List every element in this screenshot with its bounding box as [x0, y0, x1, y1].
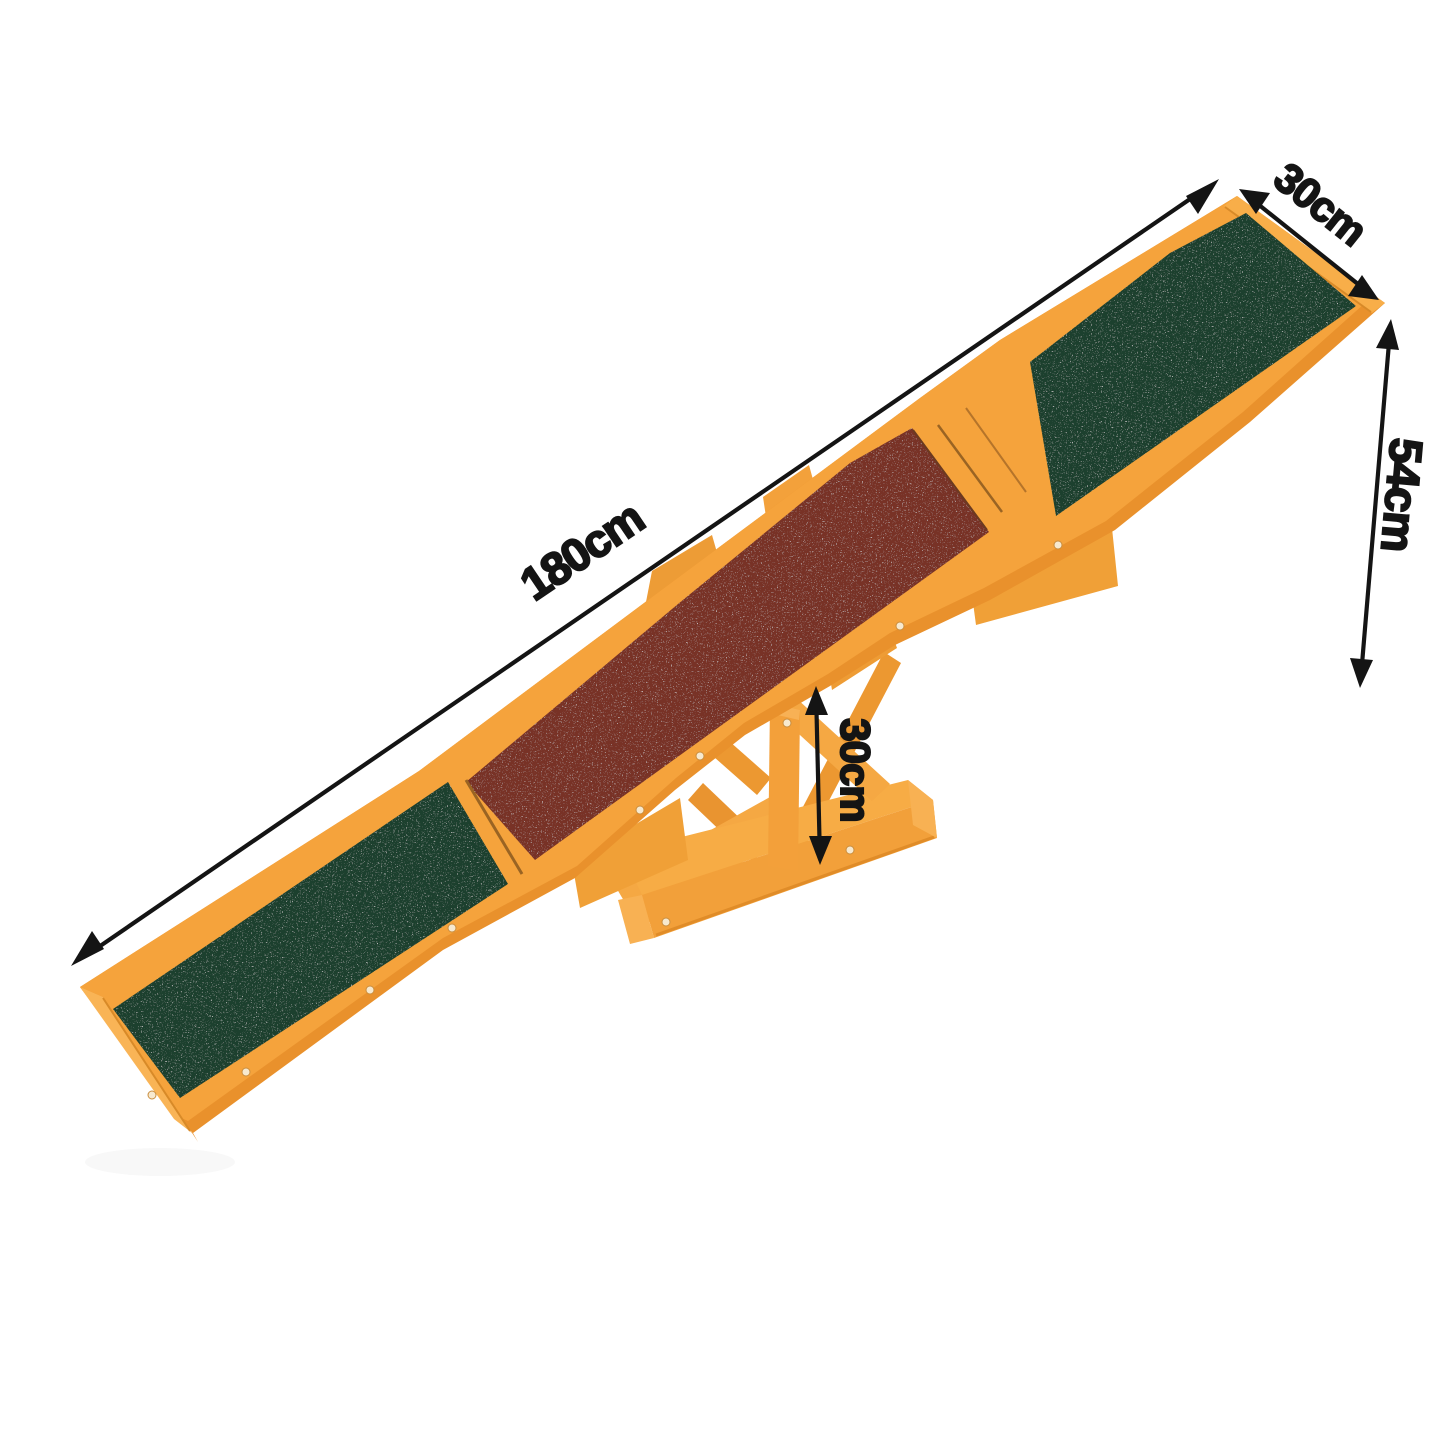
svg-text:54cm: 54cm — [1371, 436, 1433, 554]
svg-text:30cm: 30cm — [832, 718, 879, 821]
